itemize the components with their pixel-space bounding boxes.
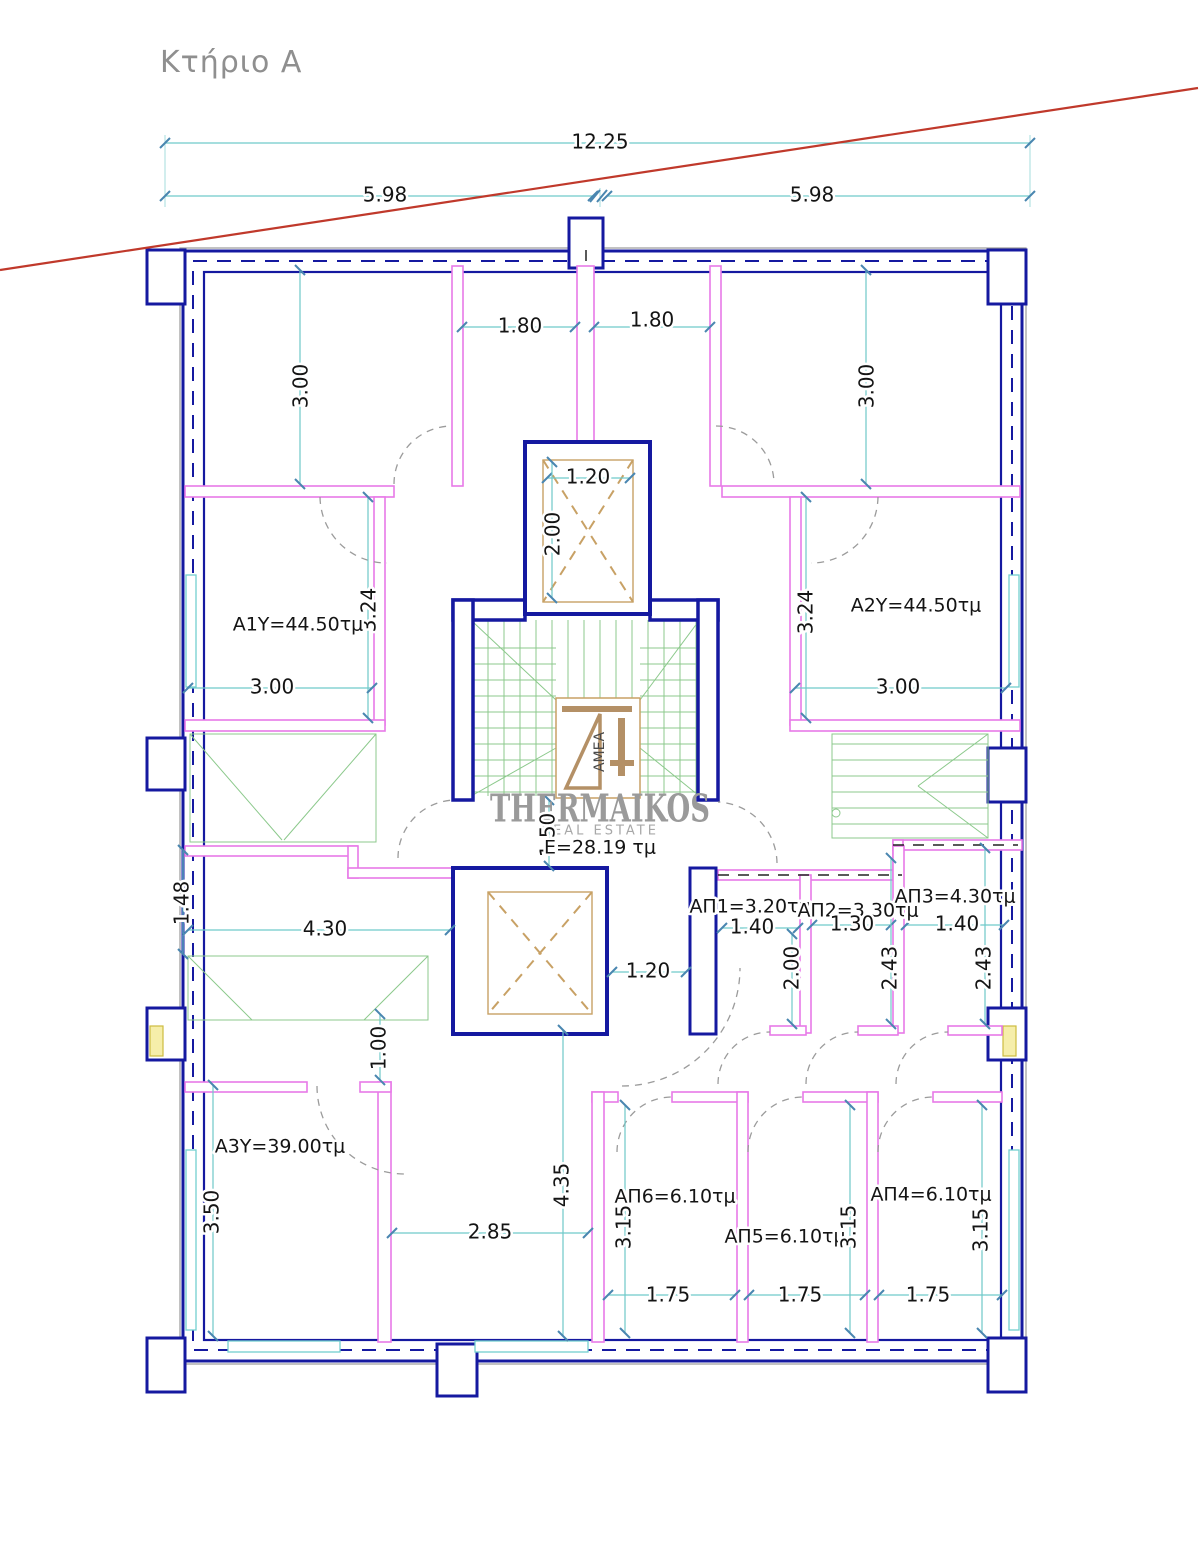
room-label-ap4: ΑΠ4=6.10τμ <box>870 1184 991 1206</box>
room-label-a1y: A1Y=44.50τμ <box>233 614 364 636</box>
room-label-a3y: A3Y=39.00τμ <box>215 1136 346 1158</box>
dim-corridor-height: 4.35 <box>550 1163 574 1208</box>
dim-upper-right-height: 3.00 <box>855 364 879 409</box>
dim-lightwell-width: 1.20 <box>626 959 671 983</box>
dim-left-recess: 1.48 <box>170 881 194 926</box>
dim-left-half: 5.98 <box>363 183 408 207</box>
dim-ap6-width: 1.75 <box>646 1283 691 1307</box>
dim-ap1-height: 2.00 <box>780 946 804 991</box>
room-label-a2y: A2Y=44.50τμ <box>851 595 982 617</box>
light-well <box>453 868 607 1034</box>
amea-elevator-logo: ΑΜΕΑ <box>556 698 640 798</box>
room-label-ap5: ΑΠ5=6.10τμ <box>724 1226 845 1248</box>
corridor-wall <box>690 868 716 1034</box>
dim-ap6-height: 3.15 <box>612 1205 636 1250</box>
dim-ap5-width: 1.75 <box>778 1283 823 1307</box>
dim-ap2-width: 1.30 <box>830 912 875 936</box>
dim-ap4-height: 3.15 <box>969 1208 993 1253</box>
dim-a2y-width: 3.00 <box>876 675 921 699</box>
room-label-ap6: ΑΠ6=6.10τμ <box>614 1186 735 1208</box>
dim-shaft-width: 1.20 <box>566 465 611 489</box>
dim-overall-width: 12.25 <box>571 130 628 154</box>
amea-logo-text: ΑΜΕΑ <box>592 732 608 773</box>
dim-a2y-height: 3.24 <box>794 590 818 635</box>
dim-ap3-width: 1.40 <box>935 912 980 936</box>
dim-a1y-width: 3.00 <box>250 675 295 699</box>
floor-plan-drawing: Κτήριο Α <box>0 0 1200 1552</box>
dim-wall-segment: 1.00 <box>367 1026 391 1071</box>
floor-plan-page: Κτήριο Α <box>0 0 1200 1552</box>
dim-ap5-height: 3.15 <box>837 1205 861 1250</box>
room-label-ap3: ΑΠ3=4.30τμ <box>894 886 1015 908</box>
dim-corridor-width: 2.85 <box>468 1220 513 1244</box>
dim-ap1-width: 1.40 <box>730 915 775 939</box>
dim-shaft-height: 2.00 <box>541 512 565 557</box>
dim-right-half: 5.98 <box>790 183 835 207</box>
area-total-label: E=28.19 τμ <box>544 837 656 859</box>
dim-ap3-height: 2.43 <box>972 946 996 991</box>
dim-ap4-width: 1.75 <box>906 1283 951 1307</box>
dim-top-left-gap: 1.80 <box>498 314 543 338</box>
dim-ap2-height: 2.43 <box>878 946 902 991</box>
dim-top-right-gap: 1.80 <box>630 308 675 332</box>
stair-right <box>832 734 988 838</box>
dim-upper-left-height: 3.00 <box>289 364 313 409</box>
dim-a3y-height: 3.50 <box>200 1190 224 1235</box>
page-title: Κτήριο Α <box>160 45 302 80</box>
dim-hall-width: 4.30 <box>303 917 348 941</box>
